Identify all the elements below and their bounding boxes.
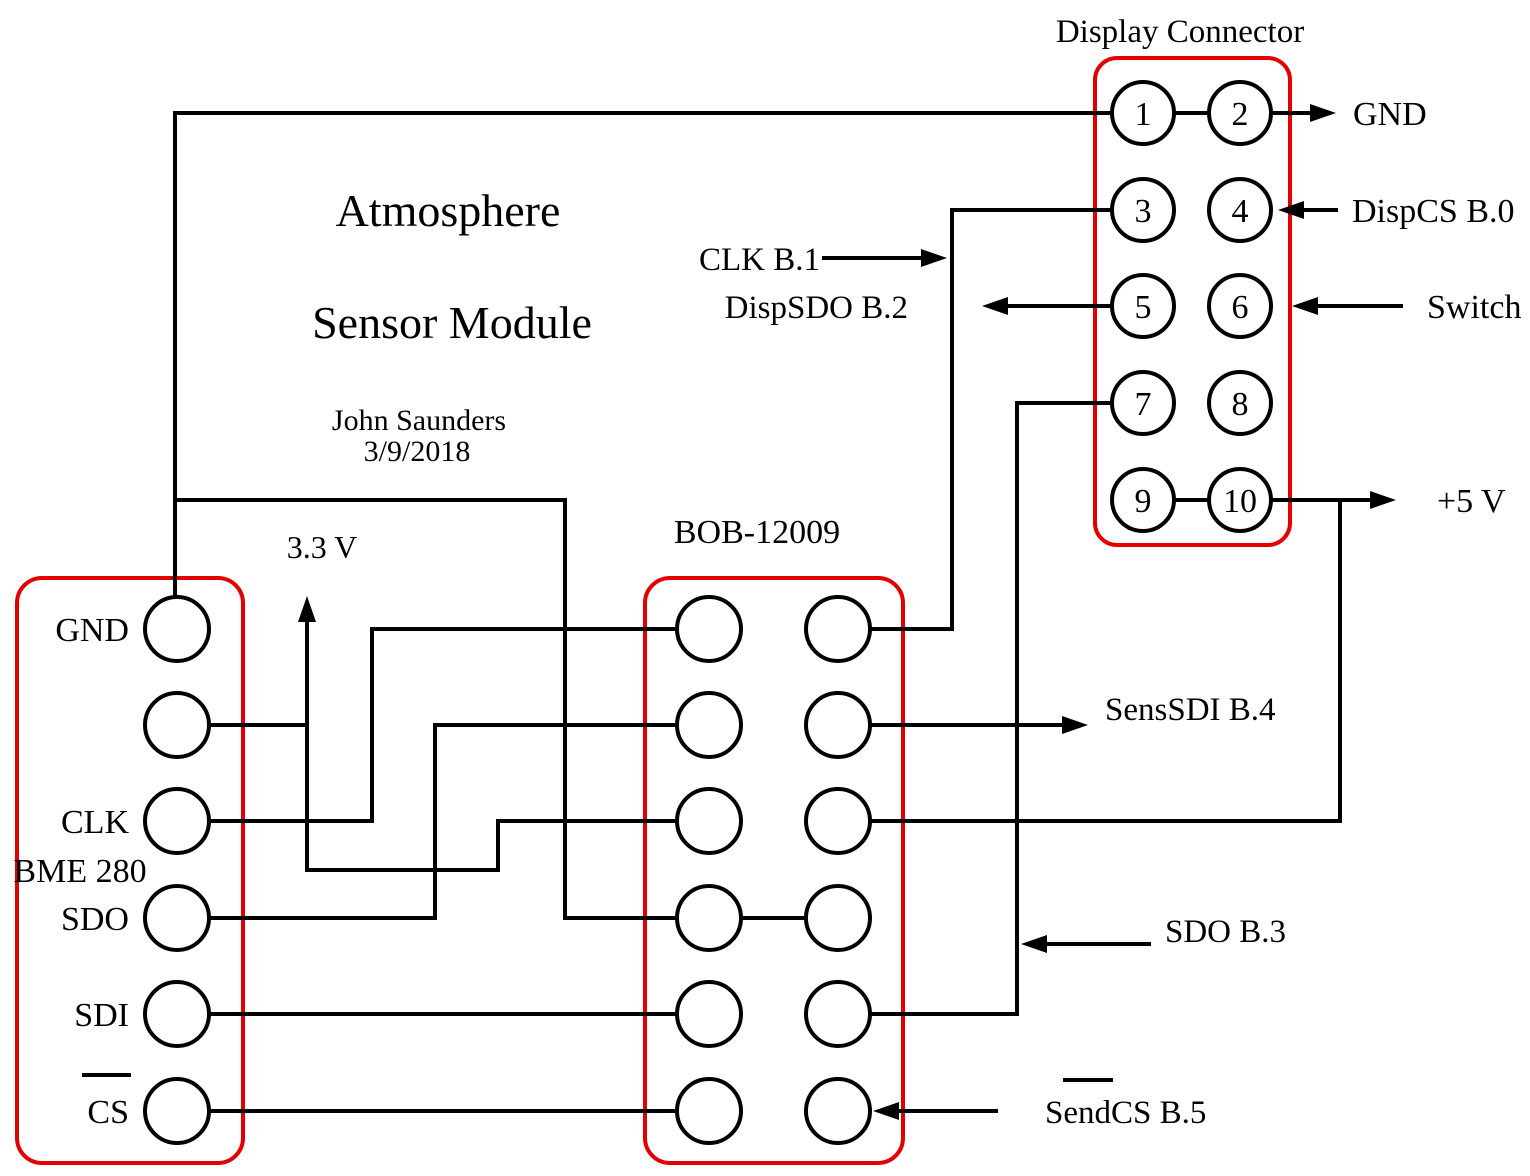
bme-pin-sdo (145, 886, 209, 950)
bob-pin-r2 (806, 693, 870, 757)
gnd-arrowhead (1310, 104, 1336, 122)
display-pin-2-number: 2 (1232, 96, 1249, 133)
signal-sendcs-label: SendCS B.5 (1045, 1095, 1206, 1131)
display-pin-7-number: 7 (1135, 386, 1152, 423)
bob-pin-r5 (806, 982, 870, 1046)
signal-dispsdo-label: DispSDO B.2 (725, 290, 908, 326)
bme-pin-cs (145, 1079, 209, 1143)
supply-3v3-label: 3.3 V (287, 529, 358, 565)
signal-senssdi-label: SensSDI B.4 (1105, 692, 1276, 728)
bob-pin-r4 (806, 886, 870, 950)
sdo-b3-arrowhead (1021, 935, 1047, 953)
signal-clk-b1-label: CLK B.1 (699, 242, 820, 278)
bob-pin-l4 (677, 886, 741, 950)
signal-sdo-b3-label: SDO B.3 (1165, 914, 1286, 950)
signal-gnd-label: GND (1353, 96, 1427, 133)
wire-3v3-supply (307, 612, 677, 870)
display-pin-9-number: 9 (1135, 483, 1152, 520)
bob-pin-l5 (677, 982, 741, 1046)
wire-gnd-main (175, 113, 1112, 597)
senssdi-arrowhead (1062, 716, 1088, 734)
display-connector-title: Display Connector (1056, 14, 1304, 50)
bme-pin-vdd (145, 693, 209, 757)
sendcs-arrowhead (873, 1102, 899, 1120)
bme-pin-clk (145, 789, 209, 853)
page-title-line2: Sensor Module (312, 297, 592, 348)
bob-pin-r3 (806, 789, 870, 853)
bme-title: BME 280 (13, 853, 146, 890)
page-title-line1: Atmosphere (336, 185, 561, 236)
wire-gnd-branch-to-bob (175, 500, 677, 918)
date-label: 3/9/2018 (364, 435, 471, 468)
clk-b1-arrowhead (921, 249, 947, 267)
display-pin-3-number: 3 (1135, 193, 1152, 230)
wire-5v-branch-to-bob (870, 502, 1340, 821)
schematic-canvas: 1 2 3 4 5 6 7 8 9 10 Atmosphere Sensor M… (0, 0, 1530, 1176)
5v-arrowhead (1370, 491, 1396, 509)
display-pin-6-number: 6 (1232, 289, 1249, 326)
wire-sdo-bob-to-display (870, 403, 1112, 1014)
bob-pin-l1 (677, 597, 741, 661)
bob12009-connector-box (645, 578, 903, 1163)
display-pin-10-number: 10 (1223, 483, 1257, 520)
bme-label-clk: CLK (61, 804, 129, 841)
display-pin-5-number: 5 (1135, 289, 1152, 326)
bob-pin-r6 (806, 1079, 870, 1143)
bme-label-cs: CS (87, 1094, 129, 1131)
wire-clk-bob-to-display (870, 210, 1112, 629)
dispsdo-arrowhead (982, 297, 1008, 315)
signal-dispcs-label: DispCS B.0 (1352, 193, 1515, 230)
switch-arrowhead (1292, 297, 1318, 315)
bob-title: BOB-12009 (674, 514, 840, 551)
bob-pin-l3 (677, 789, 741, 853)
author-name: John Saunders (332, 404, 506, 437)
bme-label-sdi: SDI (74, 997, 129, 1034)
bob-pin-r1 (806, 597, 870, 661)
bob-pin-l6 (677, 1079, 741, 1143)
signal-switch-label: Switch (1427, 289, 1521, 326)
signal-plus5v-label: +5 V (1437, 483, 1506, 520)
bob-pin-l2 (677, 693, 741, 757)
3v3-arrowhead (298, 596, 316, 622)
display-pin-1-number: 1 (1135, 96, 1152, 133)
bme-label-gnd: GND (55, 612, 129, 649)
bme-label-sdo: SDO (61, 901, 129, 938)
bme-pin-gnd (145, 597, 209, 661)
bme-pin-sdi (145, 982, 209, 1046)
display-pin-8-number: 8 (1232, 386, 1249, 423)
display-pin-4-number: 4 (1232, 193, 1249, 230)
